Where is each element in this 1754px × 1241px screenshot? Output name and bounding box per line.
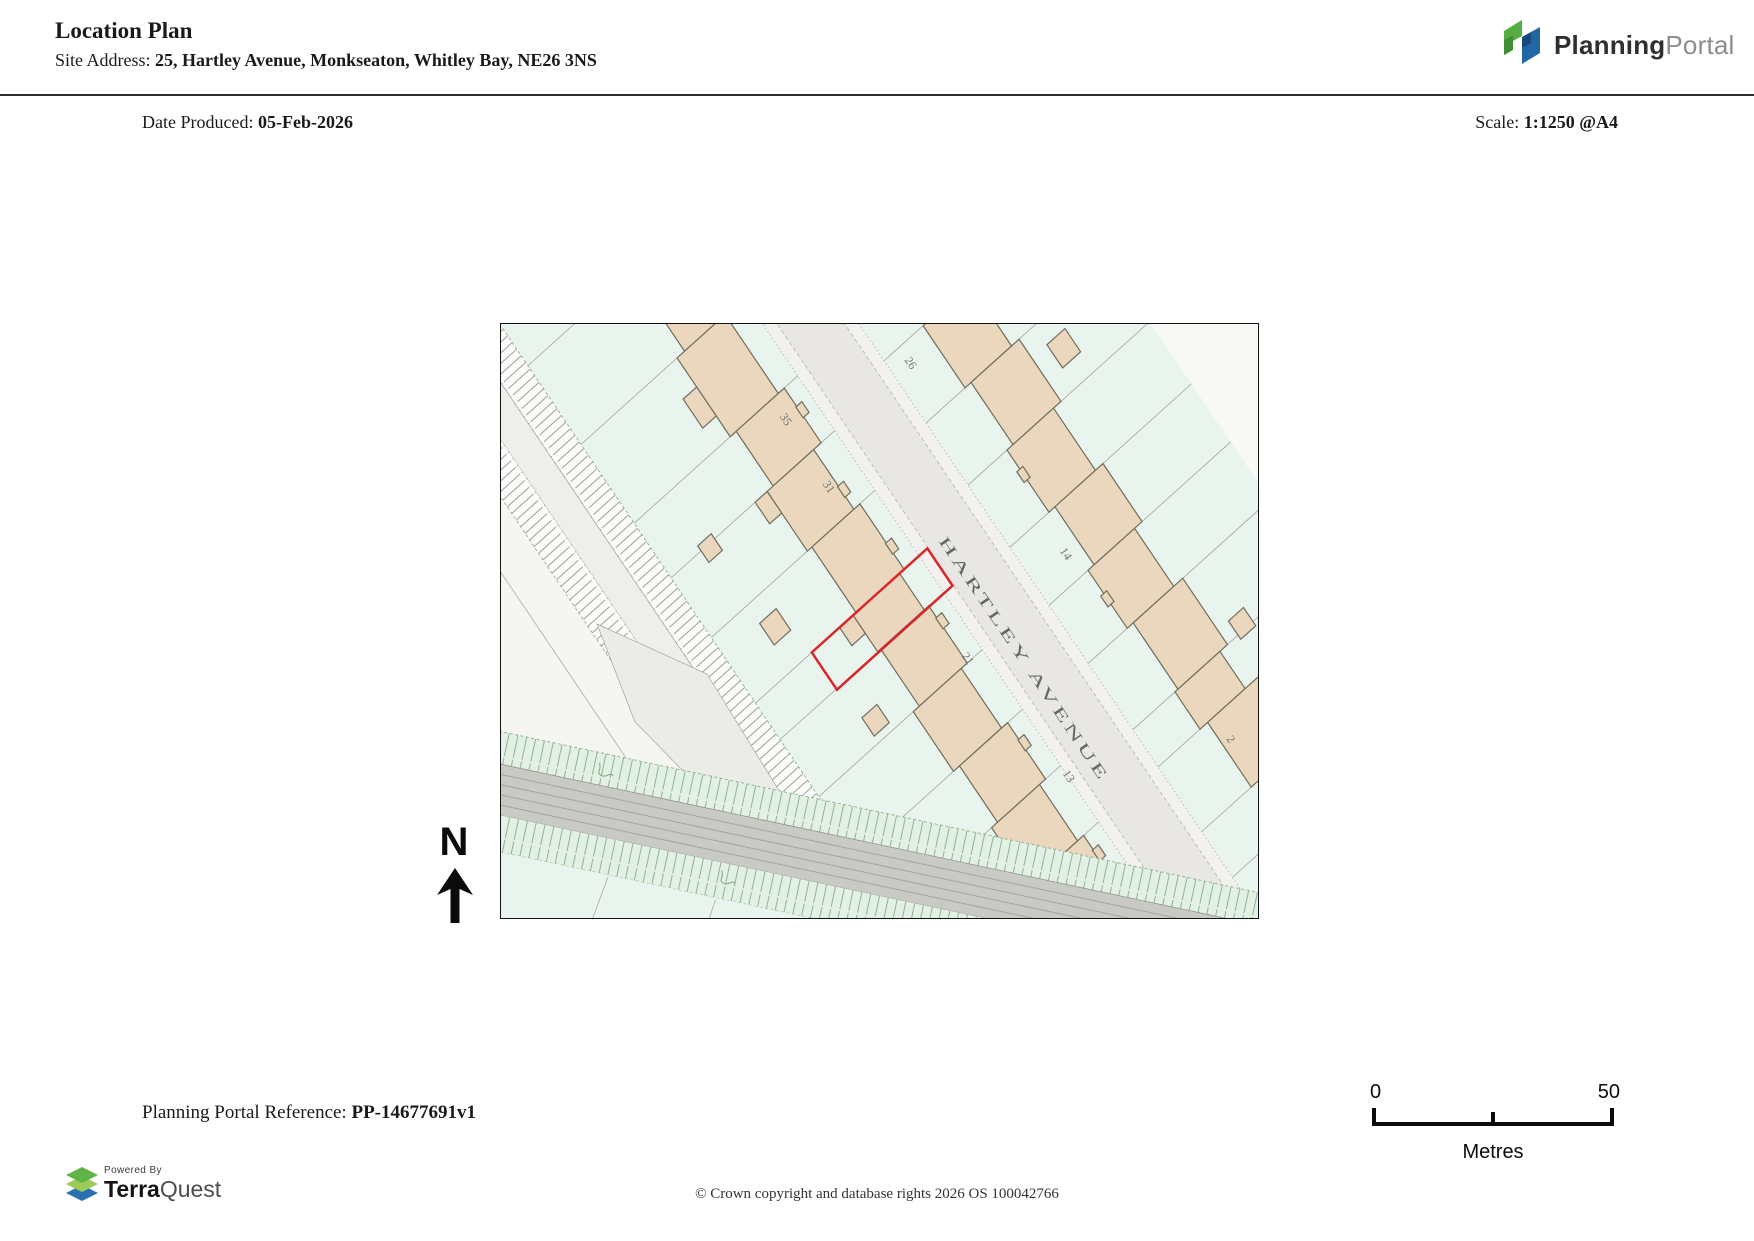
date-produced-line: Date Produced: 05-Feb-2026 [142, 112, 353, 133]
scale-bar-unit: Metres [1462, 1141, 1523, 1163]
header-divider [0, 94, 1754, 96]
site-address-value: 25, Hartley Avenue, Monkseaton, Whitley … [155, 50, 597, 70]
reference-value: PP-14677691v1 [351, 1102, 476, 1123]
north-label: N [424, 820, 484, 865]
powered-by-label: Powered By [104, 1166, 221, 1176]
scale-bar-start: 0 [1370, 1081, 1381, 1103]
scale-bar: 0 50 Metres [1358, 1068, 1638, 1172]
site-address-line: Site Address: 25, Hartley Avenue, Monkse… [55, 50, 597, 71]
planning-portal-logo-text: PlanningPortal [1554, 30, 1735, 61]
scale-label: Scale: [1475, 112, 1523, 132]
reference-line: Planning Portal Reference: PP-14677691v1 [142, 1102, 476, 1124]
north-arrow-icon [432, 866, 478, 924]
page-title: Location Plan [55, 18, 192, 44]
copyright-line: © Crown copyright and database rights 20… [0, 1186, 1754, 1203]
logo-text-portal: Portal [1665, 30, 1734, 60]
site-address-label: Site Address: [55, 50, 155, 70]
date-value: 05-Feb-2026 [258, 112, 353, 132]
date-label: Date Produced: [142, 112, 258, 132]
location-plan-document: Location Plan Site Address: 25, Hartley … [0, 0, 1754, 1241]
reference-label: Planning Portal Reference: [142, 1102, 351, 1123]
logo-text-planning: Planning [1554, 30, 1665, 60]
scale-bar-end: 50 [1598, 1081, 1620, 1103]
map-canvas: 26 35 31 21 14 13 2 HARTLEY AVENUE [500, 323, 1259, 919]
scale-line: Scale: 1:1250 @A4 [1475, 112, 1618, 133]
tq-layer-green [66, 1167, 98, 1183]
scale-value: 1:1250 @A4 [1524, 112, 1618, 132]
